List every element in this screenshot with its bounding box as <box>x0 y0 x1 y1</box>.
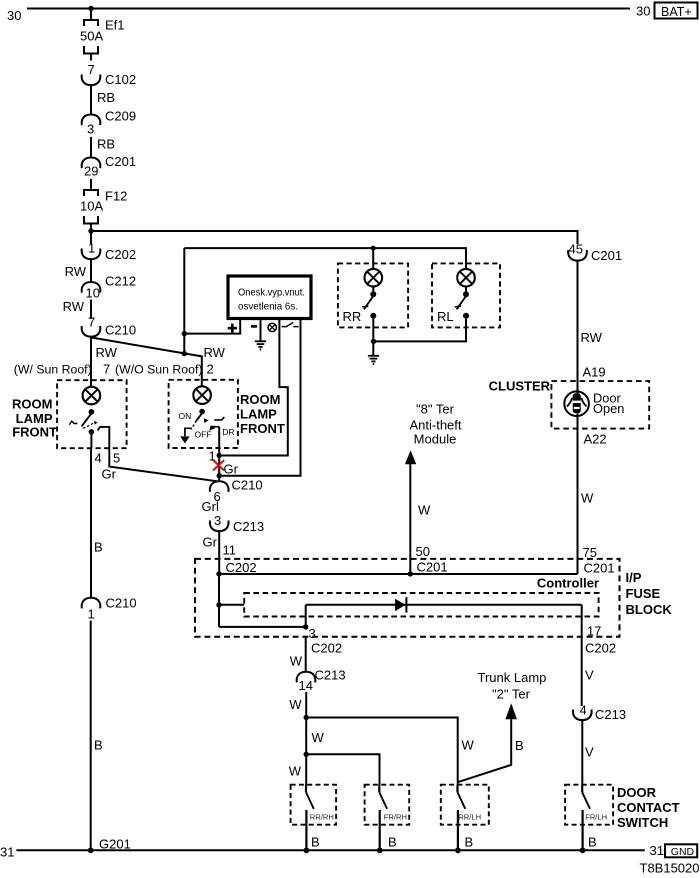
svg-text:C210: C210 <box>105 323 136 338</box>
svg-text:Anti-theft: Anti-theft <box>409 418 461 433</box>
svg-text:BAT+: BAT+ <box>661 5 692 19</box>
svg-text:FRONT: FRONT <box>240 421 285 436</box>
svg-text:4: 4 <box>95 451 102 466</box>
svg-text:SWITCH: SWITCH <box>617 815 668 830</box>
svg-text:"8" Ter: "8" Ter <box>416 402 455 417</box>
svg-text:C209: C209 <box>105 109 136 124</box>
svg-text:Open: Open <box>593 401 624 416</box>
svg-text:T8B15020: T8B15020 <box>640 861 700 876</box>
svg-text:"2" Ter: "2" Ter <box>492 687 531 702</box>
svg-text:B: B <box>311 835 320 850</box>
svg-text:7: 7 <box>88 315 95 330</box>
svg-text:C202: C202 <box>311 641 342 656</box>
svg-text:W: W <box>312 730 325 745</box>
svg-text:14: 14 <box>299 678 313 693</box>
svg-text:3: 3 <box>87 122 94 137</box>
svg-text:11: 11 <box>223 543 237 558</box>
svg-text:I/P: I/P <box>626 570 642 585</box>
svg-text:Gr: Gr <box>224 462 239 477</box>
svg-text:ROOM: ROOM <box>240 392 280 407</box>
svg-text:FRONT: FRONT <box>12 425 57 440</box>
svg-text:C202: C202 <box>585 641 616 656</box>
svg-text:C213: C213 <box>315 668 346 683</box>
svg-text:75: 75 <box>583 545 597 560</box>
svg-text:Gr: Gr <box>102 467 117 482</box>
svg-text:(W/O Sun Roof): (W/O Sun Roof) <box>115 363 202 377</box>
svg-text:ON: ON <box>179 411 192 421</box>
svg-text:W: W <box>289 697 302 712</box>
svg-text:C201: C201 <box>591 248 622 263</box>
svg-text:RW: RW <box>581 330 603 345</box>
svg-text:C210: C210 <box>106 596 137 611</box>
svg-text:30: 30 <box>7 8 21 23</box>
svg-text:C201: C201 <box>417 560 448 575</box>
svg-text:W: W <box>289 764 302 779</box>
svg-text:DOOR: DOOR <box>617 785 657 800</box>
svg-text:10: 10 <box>86 286 100 301</box>
svg-text:Grl: Grl <box>202 499 219 514</box>
svg-text:C202: C202 <box>226 560 257 575</box>
svg-text:C202: C202 <box>105 247 136 262</box>
svg-text:Trunk Lamp: Trunk Lamp <box>478 670 547 685</box>
svg-text:RB: RB <box>97 137 115 152</box>
svg-text:RW: RW <box>65 264 87 279</box>
svg-text:31: 31 <box>0 845 14 860</box>
svg-text:LAMP: LAMP <box>240 407 277 422</box>
svg-text:50A: 50A <box>80 29 103 44</box>
svg-text:Ef1: Ef1 <box>105 18 125 33</box>
svg-text:4: 4 <box>580 703 587 718</box>
svg-text:30: 30 <box>636 4 650 19</box>
svg-text:C212: C212 <box>105 274 136 289</box>
svg-text:5: 5 <box>113 451 120 466</box>
svg-text:31: 31 <box>650 843 664 858</box>
svg-text:W: W <box>462 738 475 753</box>
svg-text:RW: RW <box>96 345 118 360</box>
svg-text:3: 3 <box>309 626 316 641</box>
svg-text:DR: DR <box>222 427 234 437</box>
svg-text:29: 29 <box>84 164 98 179</box>
svg-text:C102: C102 <box>105 72 136 87</box>
svg-text:G201: G201 <box>99 837 131 852</box>
svg-text:Module: Module <box>414 432 457 447</box>
svg-text:W: W <box>290 654 303 669</box>
svg-text:A22: A22 <box>584 432 607 447</box>
svg-text:RW: RW <box>204 345 226 360</box>
svg-text:W: W <box>418 503 431 518</box>
svg-text:C210: C210 <box>232 478 263 493</box>
svg-text:RR: RR <box>343 309 362 324</box>
svg-text:Controller: Controller <box>537 576 599 591</box>
svg-text:FR/LH: FR/LH <box>585 813 607 822</box>
svg-text:RR/LH: RR/LH <box>458 813 481 822</box>
svg-text:F12: F12 <box>105 189 127 204</box>
svg-text:17: 17 <box>587 624 601 639</box>
svg-text:OFF: OFF <box>195 429 212 439</box>
svg-text:1: 1 <box>88 607 95 622</box>
svg-text:B: B <box>515 738 524 753</box>
svg-text:FR/RH: FR/RH <box>384 813 407 822</box>
svg-text:RR/RH: RR/RH <box>310 813 334 822</box>
svg-text:7: 7 <box>88 62 95 77</box>
svg-text:FUSE: FUSE <box>626 586 661 601</box>
svg-text:GND: GND <box>671 846 695 858</box>
svg-text:C213: C213 <box>595 707 626 722</box>
svg-text:B: B <box>94 540 103 555</box>
svg-text:45: 45 <box>569 242 583 257</box>
svg-text:2: 2 <box>207 362 214 377</box>
svg-text:1: 1 <box>88 241 95 256</box>
svg-text:3: 3 <box>214 513 221 528</box>
svg-text:W: W <box>581 491 594 506</box>
svg-text:RB: RB <box>97 90 115 105</box>
svg-text:A19: A19 <box>583 365 606 380</box>
svg-text:ROOM: ROOM <box>12 397 52 412</box>
svg-text:RW: RW <box>63 299 85 314</box>
svg-text:Onesk.vyp.vnut.: Onesk.vyp.vnut. <box>238 288 305 299</box>
svg-text:CONTACT: CONTACT <box>617 800 680 815</box>
svg-text:osvetlenia 6s.: osvetlenia 6s. <box>238 302 298 313</box>
svg-text:B: B <box>388 835 397 850</box>
svg-text:RL: RL <box>437 309 454 324</box>
svg-text:10A: 10A <box>80 199 103 214</box>
svg-text:V: V <box>585 745 594 760</box>
svg-text:CLUSTER: CLUSTER <box>489 379 551 394</box>
svg-text:Gr: Gr <box>203 535 218 550</box>
svg-text:B: B <box>588 835 597 850</box>
svg-text:V: V <box>585 668 594 683</box>
svg-text:(W/ Sun Roof): (W/ Sun Roof) <box>14 363 92 377</box>
svg-text:50: 50 <box>416 544 430 559</box>
svg-text:C201: C201 <box>584 561 615 576</box>
svg-text:B: B <box>94 738 103 753</box>
svg-text:B: B <box>465 835 474 850</box>
svg-text:7: 7 <box>103 362 110 377</box>
svg-text:C213: C213 <box>233 519 264 534</box>
svg-text:C201: C201 <box>105 154 136 169</box>
svg-text:BLOCK: BLOCK <box>626 602 673 617</box>
